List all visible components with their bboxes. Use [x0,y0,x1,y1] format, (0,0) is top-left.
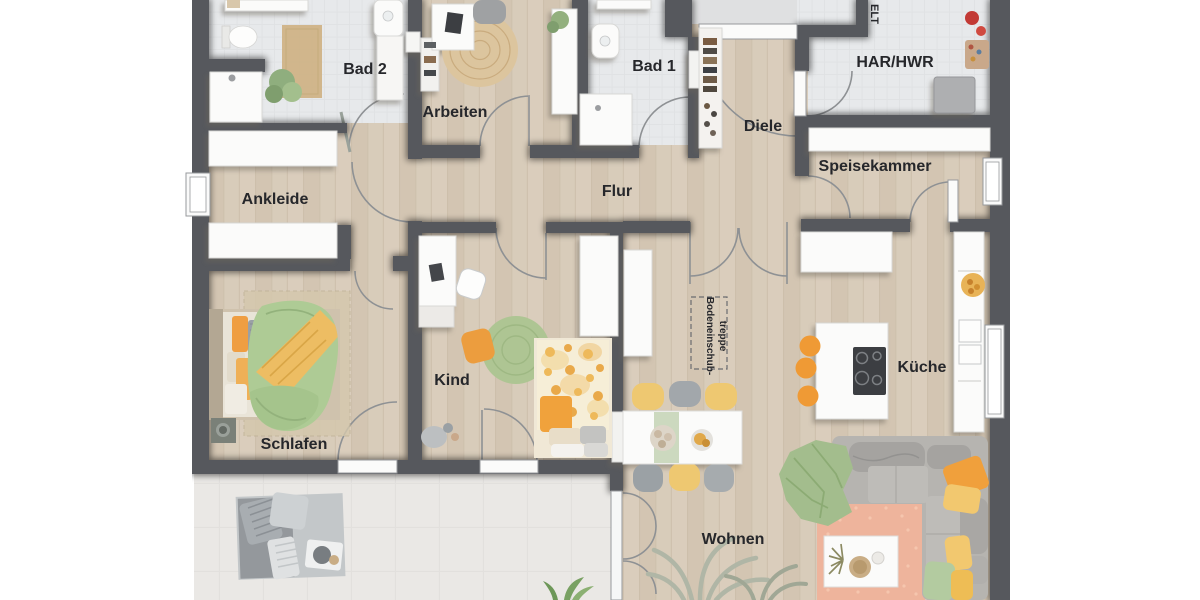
svg-text:Bad 1: Bad 1 [632,58,676,75]
svg-text:Speisekammer: Speisekammer [819,158,932,175]
svg-text:Schlafen: Schlafen [261,436,328,453]
svg-text:Ankleide: Ankleide [242,191,309,208]
svg-text:Bad 2: Bad 2 [343,61,387,78]
svg-text:Wohnen: Wohnen [702,531,765,548]
svg-text:ELT: ELT [868,4,880,24]
svg-text:Bodeneinschub-: Bodeneinschub- [704,297,715,375]
svg-text:Flur: Flur [602,183,632,200]
svg-text:Küche: Küche [898,359,947,376]
svg-text:Kind: Kind [434,372,470,389]
svg-text:Diele: Diele [744,118,782,135]
svg-text:Arbeiten: Arbeiten [423,104,488,121]
svg-text:treppe: treppe [717,321,728,352]
svg-text:HAR/HWR: HAR/HWR [856,54,934,71]
